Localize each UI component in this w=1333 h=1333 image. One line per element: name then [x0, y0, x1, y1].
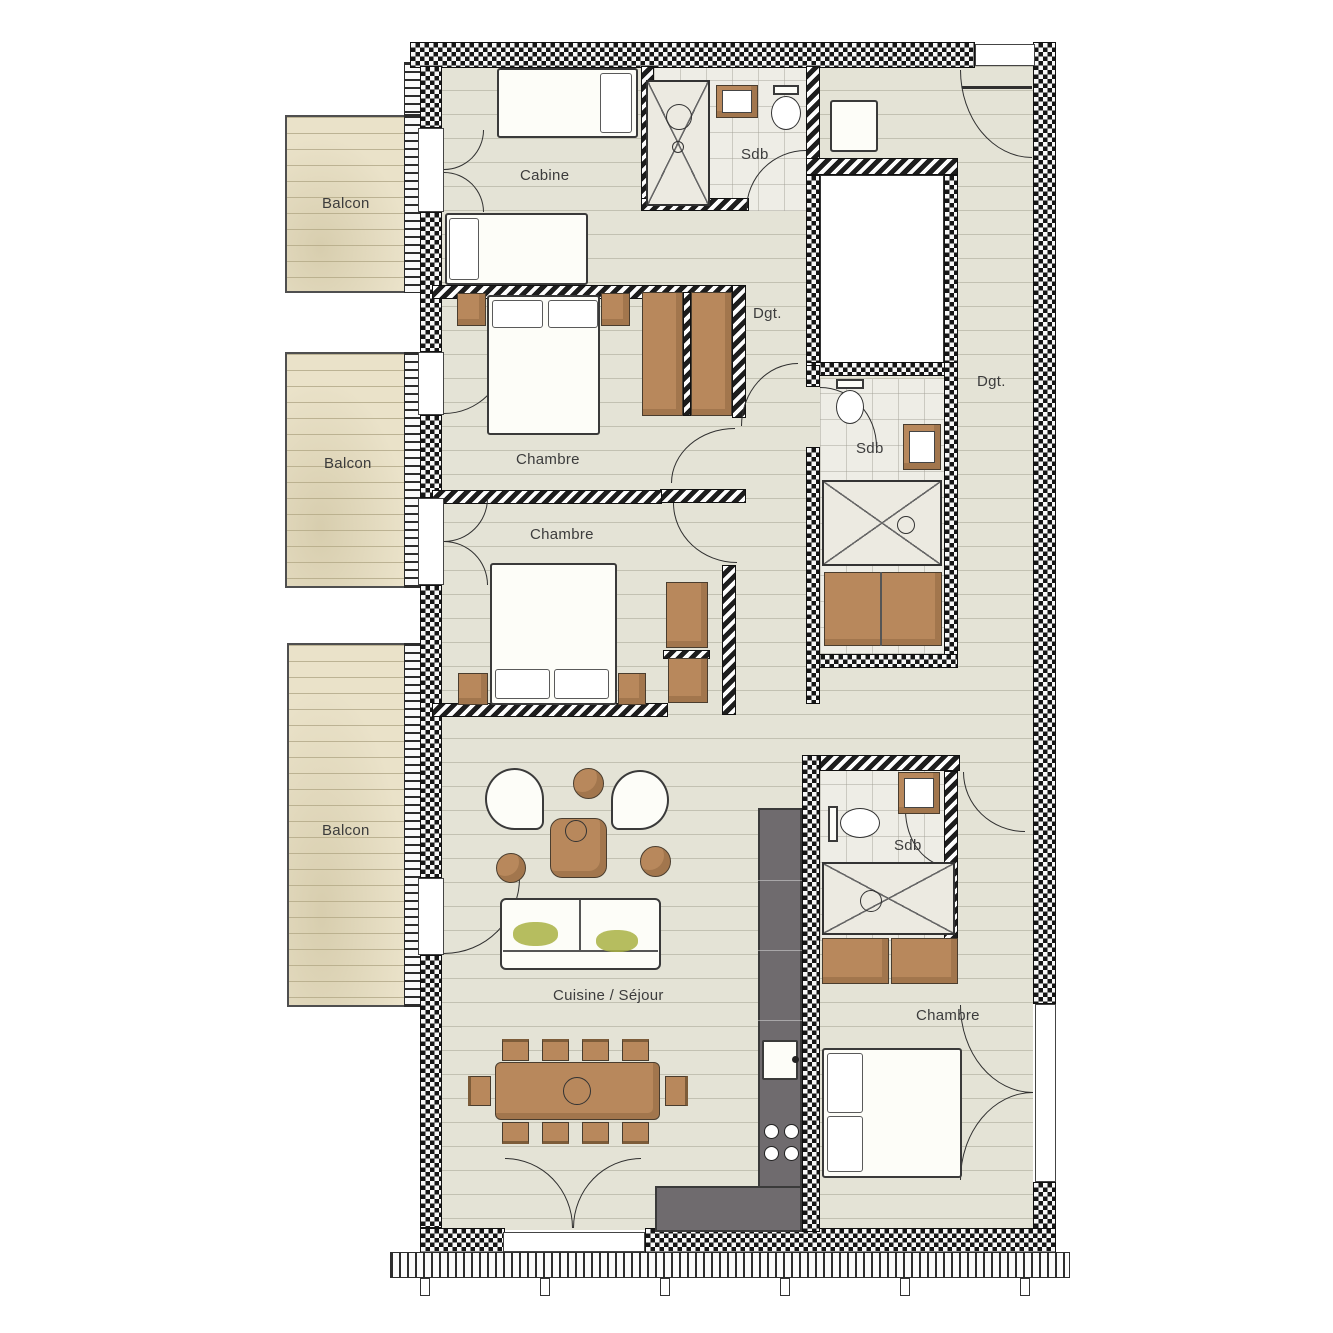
wall-right [1033, 42, 1056, 1004]
threshold-bedroom-french-door [1035, 1004, 1056, 1182]
sink-basin [904, 778, 934, 808]
toilet-tank [773, 85, 799, 95]
pillow [600, 73, 632, 133]
wardrobe-chambre1-a [642, 292, 683, 416]
nightstand [618, 673, 646, 705]
nightstand [458, 673, 488, 705]
counter-cabinet-line [758, 950, 802, 951]
railing-post [420, 1278, 430, 1296]
stove-burner-icon [784, 1146, 799, 1161]
wall-closet1-right [732, 285, 746, 418]
pillow [449, 218, 479, 280]
room-label-balcon-1: Balcon [322, 195, 370, 212]
room-label-dgt-right: Dgt. [977, 373, 1006, 390]
toilet-bowl [840, 808, 880, 838]
room-label-dgt-top: Dgt. [753, 305, 782, 322]
wardrobe-chambre1-b [691, 292, 732, 416]
pouf [496, 853, 526, 883]
wall-shaft-top [806, 158, 958, 175]
dining-chair [542, 1122, 569, 1144]
dining-chair [502, 1039, 529, 1061]
stove-burner-icon [764, 1146, 779, 1161]
wall-shaft-right [944, 175, 958, 375]
window-strip [404, 62, 421, 115]
threshold-terrace-door [503, 1232, 645, 1252]
armchair-left [485, 768, 544, 830]
shower-head-icon [897, 516, 915, 534]
terrace-railing [390, 1252, 1070, 1278]
dining-chair [622, 1122, 649, 1144]
room-label-sdb-middle: Sdb [856, 440, 884, 457]
closet1-divider [683, 292, 691, 416]
wardrobe-chambre3-a [822, 938, 889, 984]
pillow [492, 300, 543, 328]
counter-cabinet-line [758, 1020, 802, 1021]
railing-post [660, 1278, 670, 1296]
sofa-back-line [503, 950, 658, 952]
room-label-chambre-1: Chambre [516, 451, 580, 468]
wall-left-seg3 [420, 415, 442, 498]
wall-shaft-left [806, 175, 820, 375]
door-entry-leaf [962, 86, 1032, 89]
room-label-balcon-3: Balcon [322, 822, 370, 839]
room-label-chambre-3: Chambre [916, 1007, 980, 1024]
bench-divider [880, 572, 882, 646]
threshold-entry-door [975, 44, 1035, 66]
shower-head-icon [666, 104, 692, 130]
tray-icon [565, 820, 587, 842]
wall-closet2-right [722, 565, 736, 715]
dining-chair [468, 1076, 491, 1106]
counter-cabinet-line [758, 880, 802, 881]
room-label-sdb-bottom: Sdb [894, 837, 922, 854]
pillow [495, 669, 550, 699]
wall-chambre2-headboard [432, 703, 668, 717]
wall-left-seg2 [420, 212, 442, 352]
wall-sdb-mid-left-a [806, 365, 820, 387]
wall-sdb-mid-left-b [806, 447, 820, 704]
nightstand [457, 293, 486, 326]
stove-burner-icon [784, 1124, 799, 1139]
pillow [827, 1116, 863, 1172]
pillow [554, 669, 609, 699]
dining-chair [582, 1039, 609, 1061]
sink-basin [909, 431, 935, 463]
wall-sdb-mid-bottom [806, 654, 958, 668]
room-label-sdb-top: Sdb [741, 146, 769, 163]
faucet-icon [792, 1056, 799, 1063]
threshold-cabine-balcony [418, 128, 444, 212]
room-label-cuisine-sejour: Cuisine / Séjour [553, 987, 664, 1004]
sofa-plant-accent [596, 930, 638, 952]
threshold-living-balcony [418, 878, 444, 955]
shaft-void [820, 175, 944, 365]
nightstand [601, 293, 630, 326]
wall-hall-stub [660, 489, 746, 503]
wall-top [410, 42, 975, 68]
shower-head-icon [860, 890, 882, 912]
wall-left-seg5 [420, 955, 442, 1228]
shower-bottom [822, 862, 955, 935]
toilet-tank [828, 806, 838, 842]
dining-chair [622, 1039, 649, 1061]
wall-sdb3-top [820, 755, 960, 771]
sofa-plant-accent [513, 922, 558, 946]
pouf [573, 768, 604, 799]
threshold-chambre1-balcony [418, 352, 444, 415]
apartment-floor-plan: Balcon Balcon Balcon Cabine Sdb Dgt. Cha… [0, 0, 1333, 1333]
wall-bottom-left [420, 1228, 505, 1254]
wall-sdb-mid-right [944, 362, 958, 668]
railing-post [900, 1278, 910, 1296]
room-label-chambre-2: Chambre [530, 526, 594, 543]
railing-post [540, 1278, 550, 1296]
table-centerpiece-icon [563, 1077, 591, 1105]
shower-middle [822, 480, 942, 566]
pouf [640, 846, 671, 877]
dining-chair [502, 1122, 529, 1144]
threshold-chambre2-balcony [418, 498, 444, 585]
toilet-tank [836, 379, 864, 389]
pillow [548, 300, 598, 328]
stove-burner-icon [764, 1124, 779, 1139]
room-label-cabine: Cabine [520, 167, 569, 184]
armchair-right [611, 770, 669, 830]
wall-sdb-mid-top [806, 362, 958, 376]
corridor-cabinet [830, 100, 878, 152]
toilet-bowl [771, 96, 801, 130]
wall-left-seg1 [420, 66, 442, 128]
sink-basin [722, 90, 752, 113]
wardrobe-chambre2-b [668, 658, 708, 703]
bathroom-bench [824, 572, 942, 646]
railing-post [1020, 1278, 1030, 1296]
pillow [827, 1053, 863, 1113]
wardrobe-chambre2-a [666, 582, 708, 648]
shower-drain-icon [672, 141, 684, 153]
dining-chair [582, 1122, 609, 1144]
railing-post [780, 1278, 790, 1296]
room-label-balcon-2: Balcon [324, 455, 372, 472]
wall-living-bedroom [802, 755, 820, 1232]
kitchen-counter-bottom [655, 1186, 802, 1232]
dining-chair [665, 1076, 688, 1106]
wall-left-seg4 [420, 585, 442, 878]
toilet-bowl [836, 390, 864, 424]
wardrobe-chambre3-b [891, 938, 958, 984]
sofa-cushion-divider [579, 900, 581, 950]
dining-chair [542, 1039, 569, 1061]
